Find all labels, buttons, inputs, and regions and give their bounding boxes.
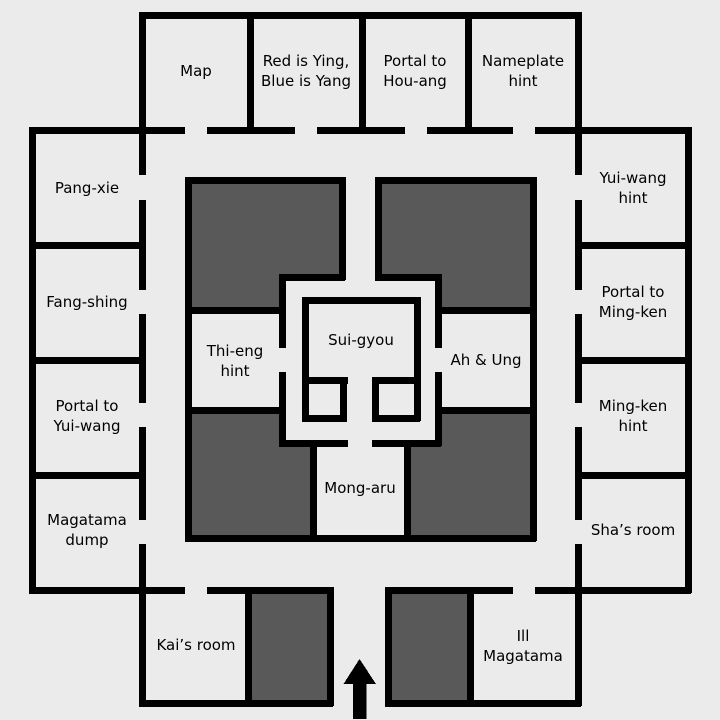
dark-room (248, 590, 330, 703)
dark-room (407, 410, 533, 538)
dungeon-floor-plan: Map Red is Ying, Blue is Yang Portal to … (0, 0, 720, 720)
dark-room (188, 410, 313, 538)
walls (29, 12, 692, 707)
dark-room (378, 180, 533, 310)
floor-plan-drawing (0, 0, 720, 720)
dark-rooms (188, 180, 533, 703)
dark-room (388, 590, 470, 703)
entrance-up-arrow-icon (344, 659, 377, 719)
dark-room (188, 180, 342, 310)
